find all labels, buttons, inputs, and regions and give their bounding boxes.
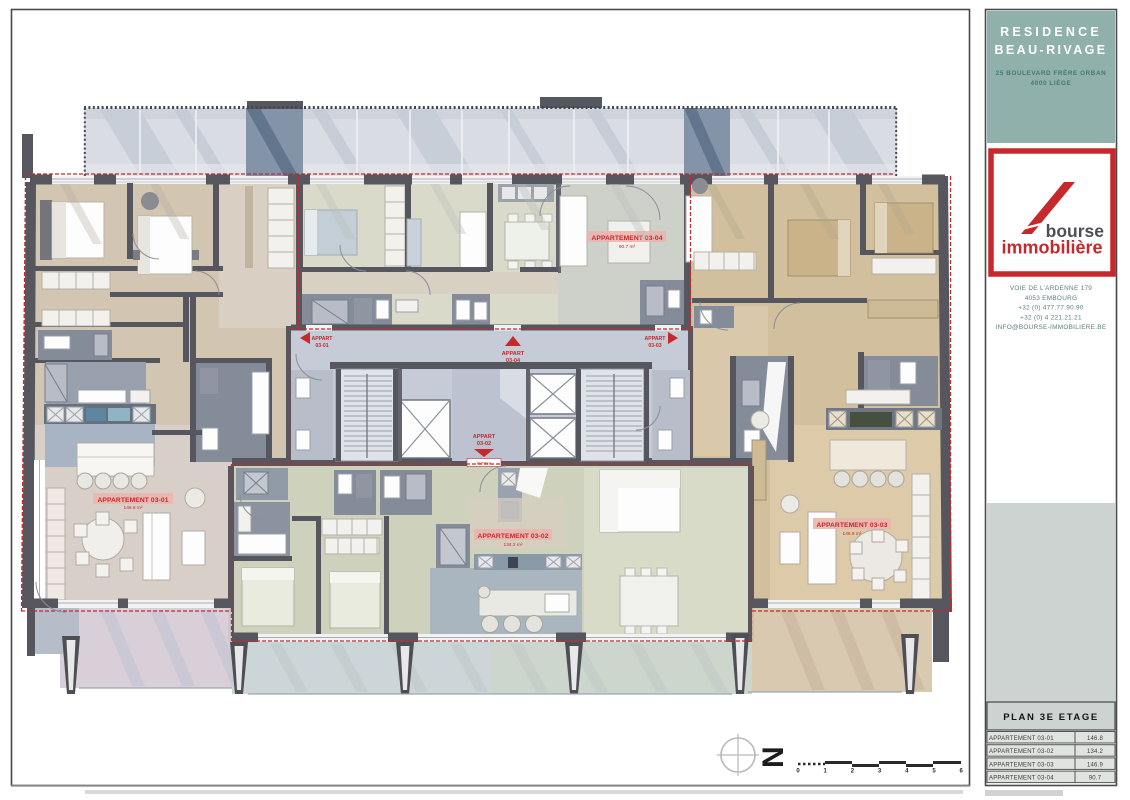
svg-text:+32 (0) 477.77.90.90: +32 (0) 477.77.90.90 bbox=[1018, 305, 1084, 312]
svg-text:VOIE DE L’ARDENNE 179: VOIE DE L’ARDENNE 179 bbox=[1010, 285, 1092, 292]
svg-text:134.2 m²: 134.2 m² bbox=[504, 542, 523, 548]
svg-text:146.8: 146.8 bbox=[1087, 736, 1103, 742]
svg-text:03-02: 03-02 bbox=[477, 441, 491, 447]
svg-text:90.7: 90.7 bbox=[1089, 776, 1102, 782]
svg-text:146.9: 146.9 bbox=[1087, 762, 1103, 768]
svg-text:PLAN 3E ETAGE: PLAN 3E ETAGE bbox=[1003, 712, 1099, 723]
svg-text:RESIDENCE: RESIDENCE bbox=[1000, 25, 1102, 39]
svg-text:immobilière: immobilière bbox=[1001, 238, 1102, 258]
svg-text:APPARTEMENT 03-03: APPARTEMENT 03-03 bbox=[816, 522, 887, 529]
svg-text:APPART: APPART bbox=[645, 336, 667, 342]
svg-text:APPARTEMENT 03-01: APPARTEMENT 03-01 bbox=[989, 736, 1054, 742]
svg-text:03-04: 03-04 bbox=[506, 358, 521, 364]
svg-text:90.7 m²: 90.7 m² bbox=[619, 244, 636, 250]
svg-text:APPART: APPART bbox=[502, 351, 525, 357]
svg-text:4053 EMBOURG: 4053 EMBOURG bbox=[1025, 295, 1078, 302]
svg-text:03-01: 03-01 bbox=[315, 343, 328, 349]
svg-text:APPARTEMENT 03-03: APPARTEMENT 03-03 bbox=[989, 762, 1054, 768]
svg-text:INFO@BOURSE-IMMOBILIERE.BE: INFO@BOURSE-IMMOBILIERE.BE bbox=[996, 324, 1107, 331]
svg-text:APPARTEMENT 03-01: APPARTEMENT 03-01 bbox=[97, 497, 168, 504]
svg-text:134.2: 134.2 bbox=[1087, 749, 1103, 755]
svg-text:25 BOULEVARD FRÈRE ORBAN: 25 BOULEVARD FRÈRE ORBAN bbox=[996, 68, 1107, 77]
svg-text:146.8 m²: 146.8 m² bbox=[124, 505, 143, 511]
svg-text:APPARTEMENT 03-02: APPARTEMENT 03-02 bbox=[477, 533, 548, 540]
svg-text:03-03: 03-03 bbox=[648, 343, 661, 349]
svg-text:APPART: APPART bbox=[473, 434, 496, 440]
svg-text:N: N bbox=[757, 746, 790, 768]
svg-text:APPARTEMENT 03-02: APPARTEMENT 03-02 bbox=[989, 749, 1054, 755]
svg-text:BEAU-RIVAGE: BEAU-RIVAGE bbox=[995, 43, 1108, 57]
svg-text:APPART: APPART bbox=[312, 336, 334, 342]
svg-text:APPARTEMENT 03-04: APPARTEMENT 03-04 bbox=[989, 776, 1054, 782]
svg-text:APPARTEMENT 03-04: APPARTEMENT 03-04 bbox=[591, 235, 662, 242]
svg-text:+32 (0) 4 221.21.21: +32 (0) 4 221.21.21 bbox=[1020, 314, 1082, 321]
svg-text:4000 LIÈGE: 4000 LIÈGE bbox=[1031, 78, 1072, 87]
svg-text:146.9 m²: 146.9 m² bbox=[843, 531, 862, 537]
